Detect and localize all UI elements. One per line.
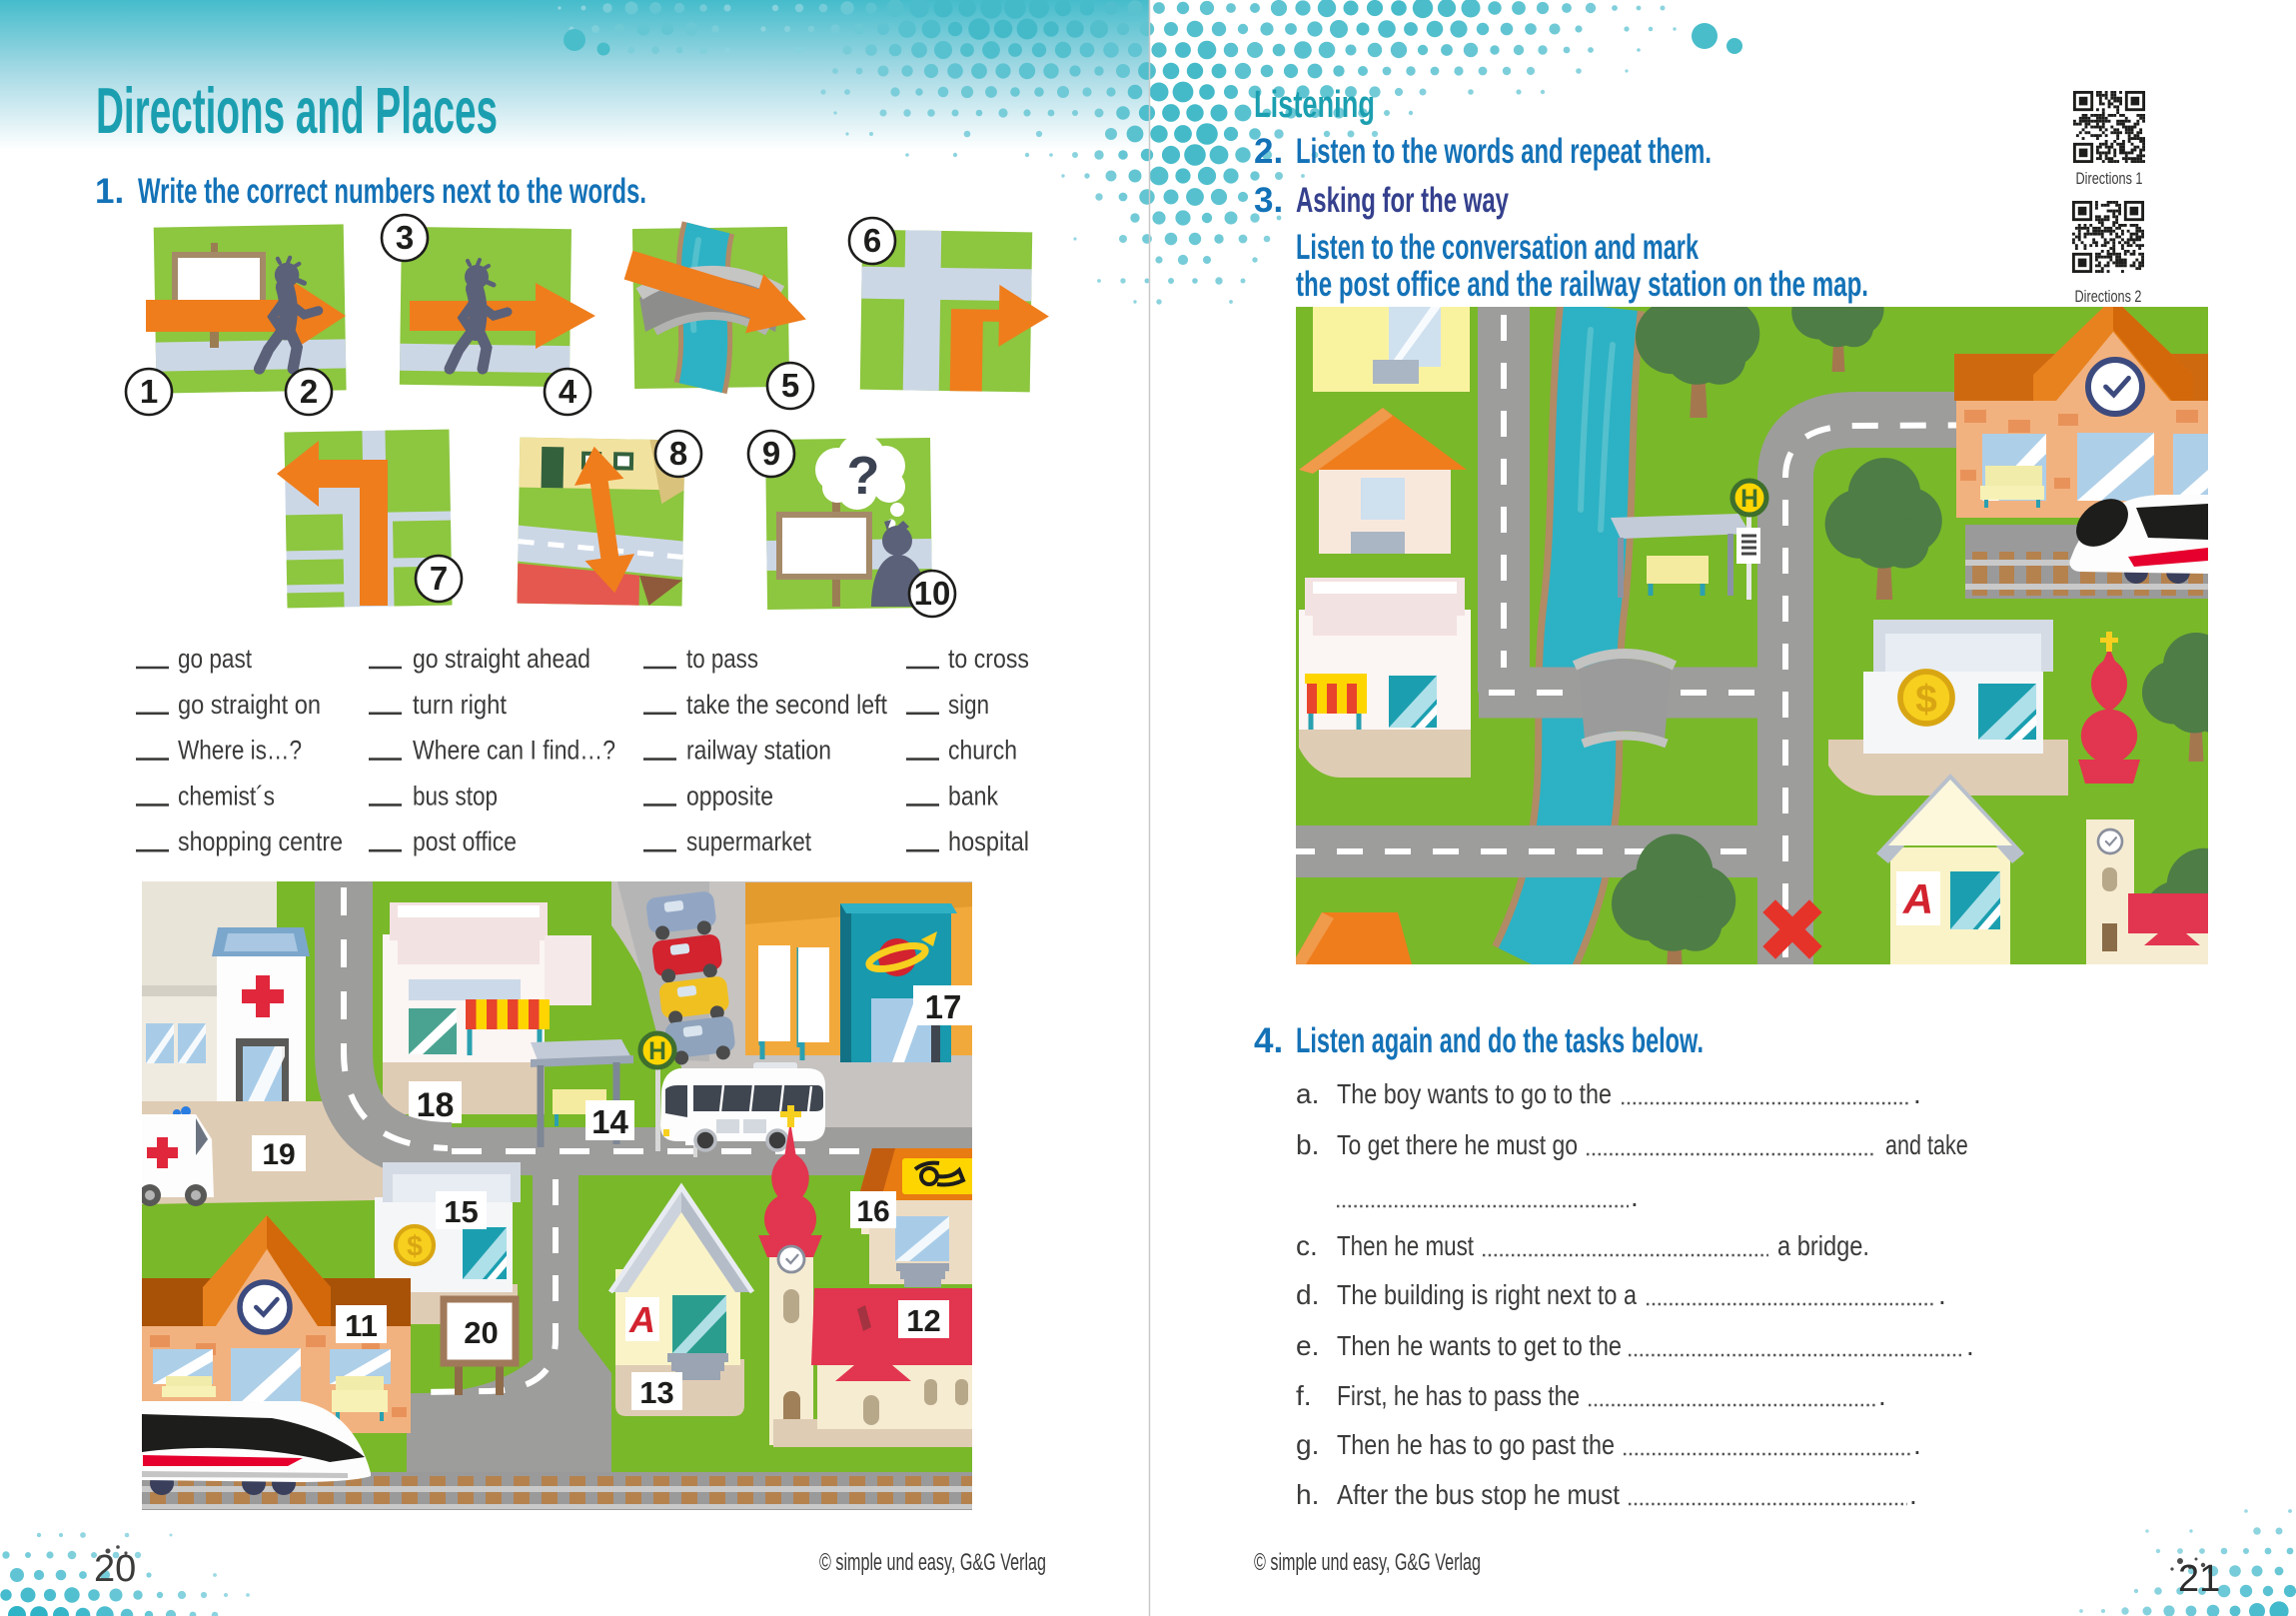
svg-text:?: ? [847,446,880,506]
svg-text:Directions 1: Directions 1 [2076,169,2143,188]
svg-text:Listen again and do the tasks: Listen again and do the tasks below. [1296,1021,1704,1060]
svg-text:Then he wants to get to the: Then he wants to get to the [1337,1330,1622,1361]
svg-text:.: . [1913,1429,1921,1460]
svg-text:13: 13 [639,1375,673,1410]
svg-text:f.: f. [1296,1380,1312,1411]
svg-text:9: 9 [762,435,780,472]
svg-text:Listening: Listening [1254,84,1375,126]
svg-text:8: 8 [669,435,687,472]
svg-text:hospital: hospital [948,826,1029,856]
svg-text:12: 12 [906,1303,940,1338]
svg-text:H: H [1740,486,1758,513]
svg-text:go straight ahead: go straight ahead [413,644,590,674]
svg-text:11: 11 [345,1308,378,1343]
svg-text:1: 1 [140,373,158,410]
svg-text:g.: g. [1296,1429,1319,1460]
svg-text:h.: h. [1296,1479,1319,1510]
svg-text:Directions and Places: Directions and Places [96,74,498,147]
svg-text:d.: d. [1296,1279,1319,1310]
svg-text:Listen to the words and repeat: Listen to the words and repeat them. [1296,132,1712,171]
svg-text:4.: 4. [1254,1021,1283,1060]
svg-text:shopping centre: shopping centre [178,826,343,856]
svg-text:opposite: opposite [686,781,773,810]
svg-text:15: 15 [444,1194,478,1229]
svg-text:© simple und easy, G&G Verlag: © simple und easy, G&G Verlag [819,1549,1046,1576]
svg-text:5: 5 [781,367,799,404]
svg-text:$: $ [407,1230,423,1262]
svg-text:21: 21 [2178,1558,2220,1600]
svg-text:3: 3 [396,219,414,256]
svg-text:After the bus stop he must: After the bus stop he must [1337,1479,1620,1510]
svg-text:A: A [628,1299,655,1340]
svg-text:bus stop: bus stop [413,781,498,810]
svg-text:First, he has to pass the: First, he has to pass the [1337,1380,1580,1411]
svg-text:turn right: turn right [413,690,507,720]
svg-text:H: H [648,1038,666,1065]
svg-text:1.: 1. [95,172,124,211]
svg-text:to cross: to cross [948,644,1029,674]
svg-text:7: 7 [430,560,448,597]
svg-text:18: 18 [417,1086,455,1124]
svg-text:bank: bank [948,781,998,810]
svg-text:To get there he must go: To get there he must go [1337,1129,1578,1160]
svg-text:go straight on: go straight on [178,690,321,720]
svg-text:10: 10 [914,575,951,612]
svg-text:b.: b. [1296,1129,1319,1160]
svg-text:e.: e. [1296,1330,1319,1361]
svg-text:Asking for the way: Asking for the way [1296,181,1509,220]
svg-text:2: 2 [300,373,318,410]
svg-text:© simple und easy, G&G Verlag: © simple und easy, G&G Verlag [1254,1549,1481,1576]
svg-text:supermarket: supermarket [686,826,811,856]
svg-text:post office: post office [413,826,517,856]
svg-text:.: . [1878,1380,1886,1411]
svg-text:A: A [1902,875,1933,922]
svg-text:and take: and take [1885,1129,1968,1160]
svg-text:6: 6 [863,222,881,259]
svg-text:19: 19 [262,1138,295,1171]
svg-text:c.: c. [1296,1230,1318,1261]
svg-text:a bridge.: a bridge. [1777,1230,1869,1261]
svg-text:to pass: to pass [686,644,758,674]
svg-text:4: 4 [559,373,577,410]
svg-text:$: $ [1915,678,1937,721]
svg-text:3.: 3. [1254,181,1283,220]
svg-text:railway station: railway station [686,736,831,766]
svg-text:20: 20 [464,1315,498,1350]
svg-text:.: . [1966,1330,1974,1361]
svg-text:church: church [948,736,1017,766]
svg-text:go past: go past [178,644,252,674]
svg-text:.: . [1909,1479,1917,1510]
svg-text:Where is…?: Where is…? [178,736,302,766]
svg-text:Write the correct numbers next: Write the correct numbers next to the wo… [138,172,646,211]
svg-text:2.: 2. [1254,132,1283,171]
svg-text:Directions 2: Directions 2 [2075,287,2142,306]
svg-text:20: 20 [94,1548,136,1590]
svg-text:.: . [1631,1181,1639,1212]
svg-text:Where can I find…?: Where can I find…? [413,736,615,766]
svg-text:.: . [1938,1279,1946,1310]
svg-text:take the second left: take the second left [686,690,887,720]
svg-text:The building is right next to: The building is right next to a [1337,1279,1637,1310]
svg-text:the post office and the railwa: the post office and the railway station … [1296,265,1868,304]
svg-text:Listen to the conversation and: Listen to the conversation and mark [1296,228,1699,267]
svg-text:Then he has to go past the: Then he has to go past the [1337,1429,1615,1460]
svg-text:a.: a. [1296,1078,1319,1109]
svg-text:The boy wants to go to the: The boy wants to go to the [1337,1078,1612,1109]
svg-text:chemist´s: chemist´s [178,781,275,810]
svg-text:Then he must: Then he must [1337,1230,1474,1261]
svg-text:14: 14 [591,1103,628,1140]
svg-text:16: 16 [856,1195,889,1228]
svg-text:17: 17 [925,988,962,1025]
svg-text:sign: sign [948,690,989,720]
svg-text:.: . [1913,1078,1921,1109]
